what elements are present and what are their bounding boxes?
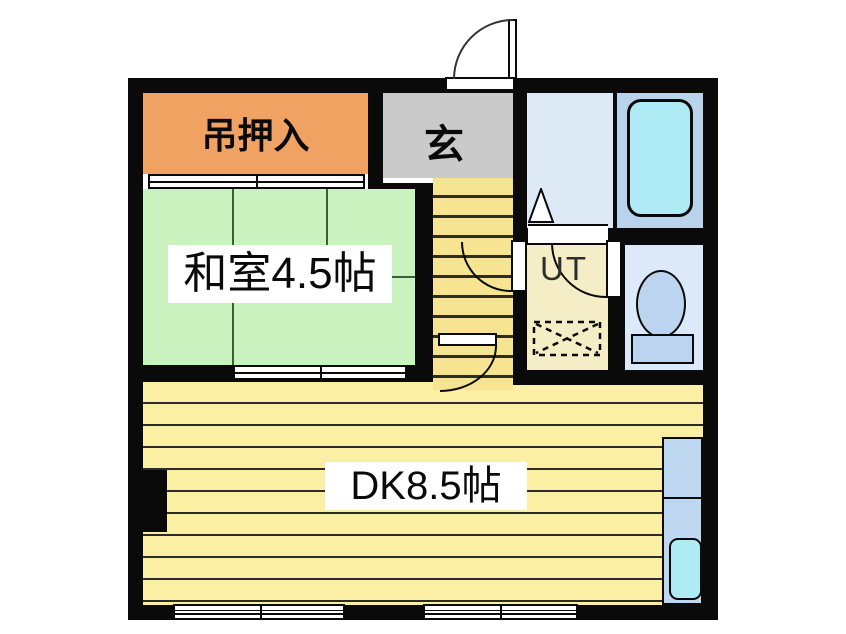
japanese-room-label: 和室4.5帖 (168, 245, 392, 303)
wall-top (128, 78, 718, 93)
toilet-tank-icon (631, 334, 694, 364)
toilet-door-leaf (606, 240, 622, 298)
window-line (175, 610, 343, 612)
wall-bath-washroom (613, 93, 617, 228)
sliding-door-japanese-room (233, 365, 407, 380)
entrance-label: 玄 (424, 112, 464, 170)
wall-under-utility (513, 370, 703, 385)
bathtub-icon (627, 99, 693, 217)
window-south-right (423, 604, 578, 620)
wall-left (128, 78, 143, 620)
entrance-door-sill (445, 77, 515, 91)
wall-center-vertical (513, 93, 527, 385)
toilet-bowl-icon (636, 270, 686, 338)
wall-right (703, 78, 718, 620)
sliding-door-tick (320, 365, 322, 380)
utility-door-leaf (511, 240, 527, 292)
floor-plan: 吊押入 玄 和室4.5帖 UT DK8.5帖 (0, 0, 846, 634)
wall-entrance-stub (383, 183, 417, 189)
opening-washroom-utility (528, 224, 608, 245)
window-south-left (173, 604, 345, 620)
closet-label: 吊押入 (143, 107, 368, 159)
window-tick (500, 604, 502, 620)
stairs-dk-door-leaf (438, 333, 497, 346)
kitchen-counter (662, 437, 703, 605)
fusuma-sliding-door (148, 174, 365, 189)
folding-door-triangle-icon (528, 188, 555, 223)
entrance-door-swing-arc (453, 19, 513, 79)
utility-label: UT (540, 250, 588, 288)
kitchen-sink-icon (669, 538, 702, 600)
dining-kitchen-label: DK8.5帖 (325, 462, 527, 510)
window-line (175, 613, 343, 615)
washing-machine-space-icon (532, 320, 602, 357)
sliding-door-tick (256, 174, 258, 189)
wall-japanese-room-right (415, 183, 433, 382)
wall-pillar (128, 470, 167, 532)
window-tick (260, 604, 262, 620)
wall-closet-entrance (368, 93, 383, 189)
counter-divider-line (664, 497, 701, 499)
